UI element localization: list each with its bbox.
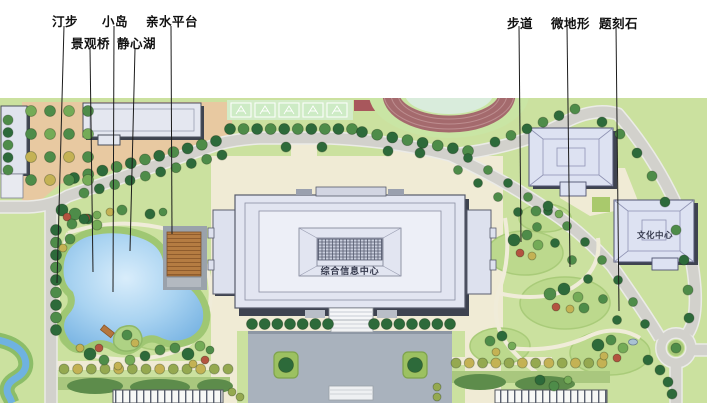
tree	[76, 344, 84, 352]
tree	[45, 129, 56, 140]
tree	[679, 255, 689, 265]
tree	[531, 358, 541, 368]
tree	[211, 136, 222, 147]
tree	[514, 208, 523, 217]
tree	[3, 140, 13, 150]
tree	[26, 129, 37, 140]
tree	[491, 358, 501, 368]
tree	[140, 154, 151, 165]
tree	[64, 106, 75, 117]
tree	[3, 165, 13, 175]
tree	[629, 298, 638, 307]
tree	[51, 325, 62, 336]
tree	[236, 393, 244, 401]
tree	[381, 319, 392, 330]
tree	[127, 364, 137, 374]
tree	[110, 180, 120, 190]
tree	[51, 250, 62, 261]
tree	[140, 351, 150, 361]
tree	[568, 256, 577, 265]
tree	[97, 165, 108, 176]
tree	[111, 161, 122, 172]
tree	[83, 152, 94, 163]
tree	[347, 124, 358, 135]
tree	[369, 319, 380, 330]
tree	[551, 239, 560, 248]
tree	[433, 383, 441, 391]
tree	[671, 225, 681, 235]
tree	[170, 343, 180, 353]
tree	[618, 343, 628, 353]
tree	[464, 154, 473, 163]
tree	[45, 106, 56, 117]
tree	[485, 336, 495, 346]
tree	[292, 124, 303, 135]
tree	[543, 201, 553, 211]
annotation-waterfront-deck: 亲水平台	[146, 11, 198, 30]
tree	[684, 313, 694, 323]
tree	[660, 197, 670, 207]
tree	[533, 223, 542, 232]
tree	[552, 303, 560, 311]
tree	[535, 375, 545, 385]
tree	[51, 275, 62, 286]
campus-site-plan: 综合信息中心 文化中心	[0, 0, 720, 403]
tree	[357, 127, 368, 138]
culture-center-label: 文化中心	[637, 230, 673, 240]
tree	[544, 288, 556, 300]
tree	[387, 132, 398, 143]
tree	[209, 364, 219, 374]
tree	[3, 153, 13, 163]
tree	[524, 193, 533, 202]
tree	[557, 358, 567, 368]
tree	[45, 175, 56, 186]
tree	[59, 364, 69, 374]
waterfront-deck	[163, 226, 207, 290]
tree	[544, 358, 554, 368]
tree	[383, 146, 393, 156]
tree	[182, 143, 193, 154]
site-plan-map: 综合信息中心 文化中心	[0, 98, 707, 403]
tree	[155, 364, 165, 374]
tree	[643, 355, 653, 365]
tree	[3, 115, 13, 125]
tree	[683, 285, 693, 295]
tree	[581, 238, 590, 247]
tree	[154, 150, 165, 161]
tree	[554, 111, 564, 121]
tree	[100, 364, 110, 374]
tree	[122, 330, 132, 340]
tree	[51, 225, 62, 236]
tree	[433, 393, 441, 401]
tree	[538, 117, 548, 127]
tree	[613, 316, 622, 325]
tree	[655, 365, 665, 375]
tree	[279, 124, 290, 135]
tree	[83, 106, 94, 117]
tree	[317, 142, 327, 152]
tree	[86, 364, 96, 374]
tree	[417, 137, 428, 148]
tree	[26, 152, 37, 163]
tree	[522, 230, 532, 240]
north-east-building	[529, 128, 617, 196]
tree	[319, 124, 330, 135]
tree	[508, 342, 516, 350]
tree	[517, 358, 527, 368]
courtyard-green	[592, 197, 610, 212]
tree	[279, 358, 294, 373]
tree	[570, 358, 580, 368]
tree	[522, 124, 532, 134]
tree	[504, 358, 514, 368]
tree	[168, 364, 178, 374]
tree	[252, 124, 263, 135]
tree	[272, 319, 283, 330]
tree	[497, 331, 507, 341]
tree	[206, 346, 214, 354]
tree	[484, 166, 493, 175]
tree	[196, 139, 207, 150]
tree	[92, 220, 102, 230]
tree	[600, 352, 608, 360]
tree	[281, 142, 291, 152]
tree	[490, 137, 500, 147]
tree	[598, 256, 607, 265]
tree	[140, 171, 150, 181]
tree	[94, 184, 104, 194]
tree	[247, 319, 258, 330]
tree	[186, 158, 196, 168]
inscribed-stone	[629, 339, 638, 345]
tree	[171, 163, 181, 173]
tree	[189, 360, 197, 368]
tree	[223, 364, 233, 374]
tree	[64, 175, 75, 186]
tree	[51, 300, 62, 311]
tree	[125, 158, 136, 169]
tree	[402, 135, 413, 146]
tree	[125, 355, 135, 365]
tree	[533, 240, 543, 250]
tree	[306, 124, 317, 135]
tree	[73, 364, 83, 374]
tree	[64, 129, 75, 140]
tree	[125, 175, 135, 185]
tree	[79, 188, 89, 198]
tree	[407, 319, 418, 330]
tree	[155, 345, 165, 355]
tree	[67, 219, 77, 229]
tree	[516, 249, 524, 257]
tree	[394, 319, 405, 330]
tree	[51, 287, 62, 298]
main-building-label: 综合信息中心	[321, 265, 380, 276]
tree	[592, 339, 604, 351]
tree	[333, 124, 344, 135]
tree	[297, 319, 308, 330]
annotation-micro-topography: 微地形	[551, 13, 590, 32]
tree	[84, 348, 96, 360]
tree	[508, 234, 520, 246]
tree	[447, 143, 458, 154]
tree	[528, 252, 536, 260]
tree	[614, 276, 623, 285]
tree	[202, 154, 212, 164]
tree	[285, 319, 296, 330]
tree	[372, 129, 383, 140]
tree	[494, 193, 503, 202]
tree	[156, 167, 166, 177]
tree	[323, 319, 334, 330]
tree	[573, 292, 583, 302]
tree	[93, 211, 101, 219]
annotation-island: 小岛	[102, 11, 128, 30]
tree	[506, 130, 516, 140]
tree	[632, 148, 642, 158]
tree	[26, 175, 37, 186]
tree	[217, 150, 227, 160]
tree	[26, 106, 37, 117]
tree	[195, 341, 205, 351]
tree	[478, 358, 488, 368]
tree	[419, 319, 430, 330]
tree	[558, 283, 570, 295]
tree	[531, 206, 541, 216]
tree	[228, 388, 236, 396]
tree	[667, 389, 677, 399]
tree	[114, 362, 122, 370]
tree	[641, 320, 650, 329]
tree	[238, 124, 249, 135]
tree	[59, 244, 67, 252]
tree	[454, 166, 463, 175]
tree	[145, 209, 155, 219]
tree	[564, 376, 572, 384]
tree	[95, 344, 103, 352]
tree	[432, 319, 443, 330]
tree	[141, 364, 151, 374]
tree	[168, 147, 179, 158]
tree	[259, 319, 270, 330]
tree	[79, 214, 89, 224]
tree	[647, 171, 657, 181]
tree	[671, 343, 681, 353]
tree	[492, 348, 500, 356]
tree	[117, 205, 127, 215]
tree	[464, 358, 474, 368]
tree	[99, 355, 109, 365]
tree	[613, 354, 621, 362]
tree	[201, 356, 209, 364]
tree	[451, 358, 461, 368]
tree	[131, 339, 139, 347]
tree	[265, 124, 276, 135]
tree	[408, 358, 423, 373]
tree	[64, 152, 75, 163]
annotation-tranquil-lake: 静心湖	[117, 33, 156, 52]
tree	[663, 377, 673, 387]
tree	[65, 234, 75, 244]
tree	[579, 303, 589, 313]
annotation-footpath: 步道	[507, 13, 533, 32]
tree	[570, 104, 580, 114]
tree	[415, 148, 425, 158]
annotation-landscape-bridge: 景观桥	[71, 33, 110, 52]
tree	[83, 129, 94, 140]
tree	[504, 179, 513, 188]
tree	[432, 140, 443, 151]
tree	[83, 175, 94, 186]
tree	[606, 335, 616, 345]
tree	[310, 319, 321, 330]
tree	[584, 275, 593, 284]
annotation-inscribed-stone: 题刻石	[599, 13, 638, 32]
main-building: 综合信息中心	[208, 187, 496, 321]
tree	[51, 262, 62, 273]
tree	[51, 312, 62, 323]
tree	[549, 381, 559, 391]
tree	[159, 208, 167, 216]
tree	[584, 358, 594, 368]
tree	[182, 348, 194, 360]
tree	[196, 364, 206, 374]
annotation-stepping-stones: 汀步	[52, 11, 78, 30]
tree	[106, 208, 114, 216]
tree	[474, 179, 483, 188]
tree	[597, 117, 607, 127]
tree	[599, 295, 608, 304]
tree	[225, 124, 236, 135]
tree	[563, 222, 572, 231]
tree	[615, 129, 625, 139]
tree	[3, 128, 13, 138]
tree	[445, 319, 456, 330]
tree	[555, 210, 563, 218]
tree	[45, 152, 56, 163]
tree	[566, 305, 574, 313]
